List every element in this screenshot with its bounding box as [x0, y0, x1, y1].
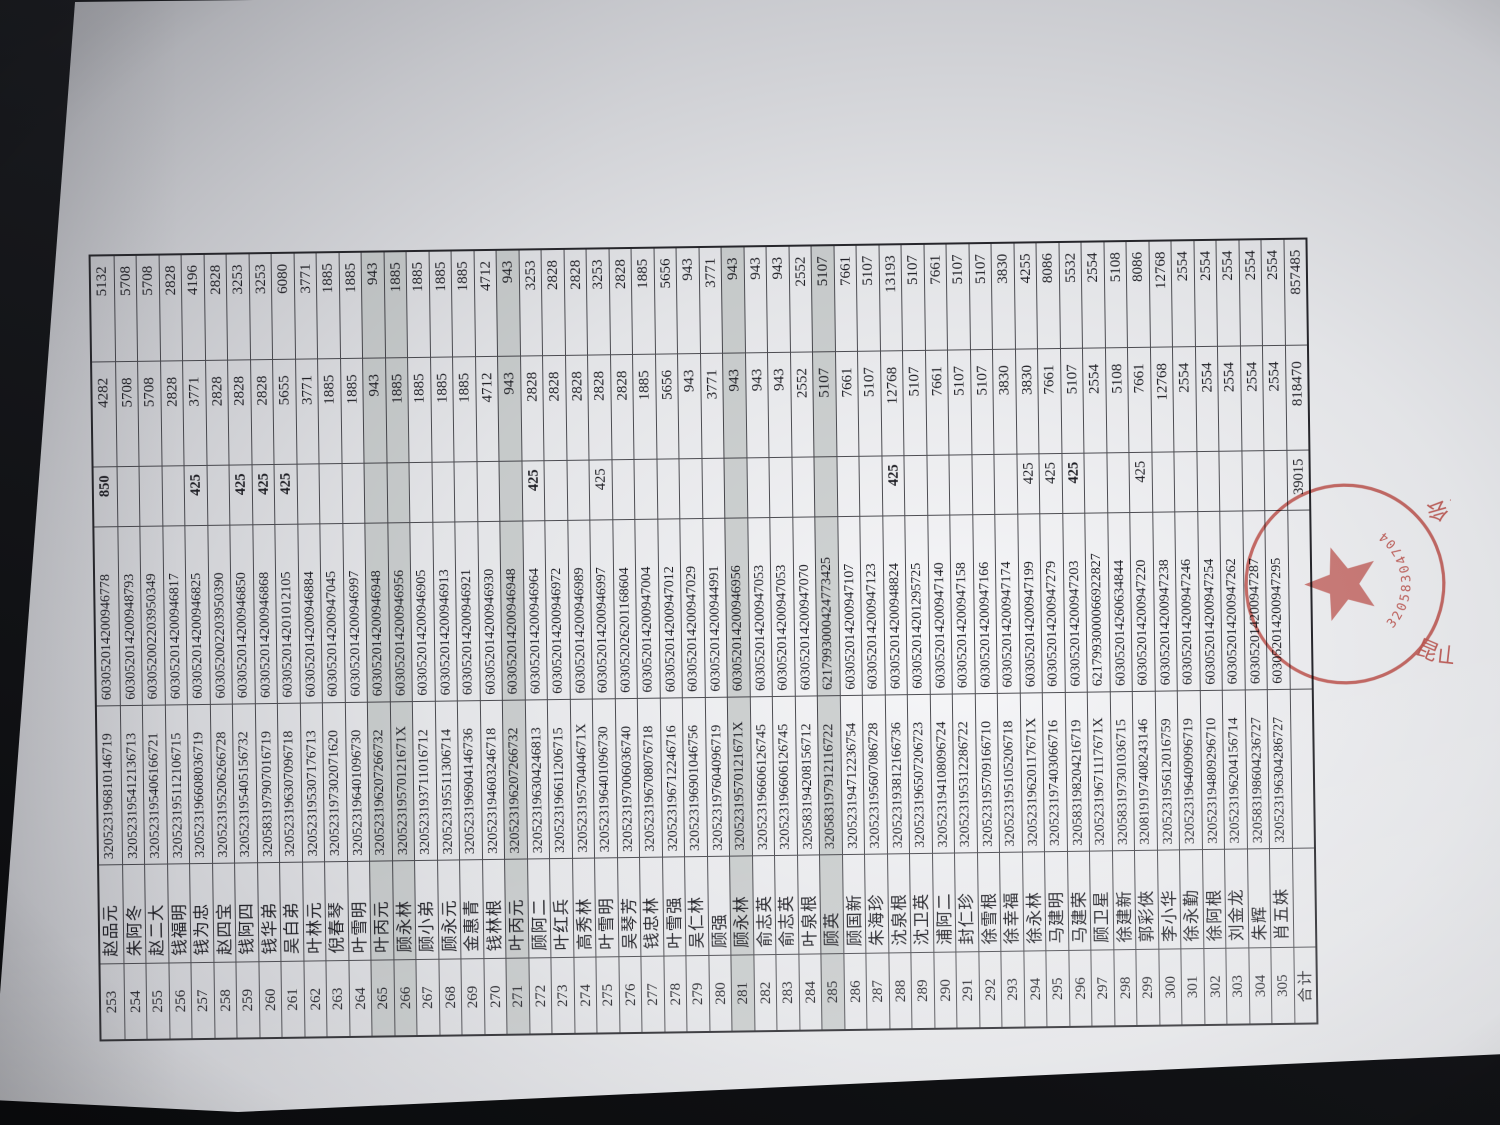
- person-name: 徐阿根: [1202, 850, 1225, 950]
- account-number: 6217993000066922827: [1085, 513, 1109, 692]
- base-amount: 3771: [296, 360, 319, 465]
- adjust-amount: 425: [1017, 454, 1039, 514]
- row-number: 285: [821, 954, 844, 1029]
- adjust-amount: [769, 458, 791, 518]
- base-amount: 5708: [138, 362, 161, 467]
- row-number: 274: [574, 958, 597, 1033]
- row-number: 255: [146, 964, 169, 1039]
- row-number: 266: [394, 960, 417, 1035]
- person-name: 钱为忠: [190, 864, 213, 964]
- total-label: 合计: [1294, 948, 1317, 1023]
- base-amount: 2828: [611, 355, 634, 460]
- adjust-amount: [297, 464, 319, 524]
- base-amount: 7661: [1038, 349, 1061, 454]
- id-number: 320523195511306714: [435, 701, 459, 860]
- adjust-amount: [387, 463, 409, 523]
- account-number: 603052014200946948: [365, 523, 389, 702]
- account-number: 603052014200946817: [163, 526, 187, 705]
- total-amount: 943: [497, 251, 520, 358]
- adjust-amount: [747, 458, 769, 518]
- rotated-table-wrapper: 253 赵品元 320523196810146719 6030520142009…: [89, 238, 1319, 1042]
- total-amount: 2828: [609, 249, 632, 356]
- id-number: 320523194712236754: [840, 696, 864, 855]
- id-number: 320819197408243146: [1133, 691, 1157, 850]
- total-amount: 2828: [204, 255, 227, 362]
- id-number: 320523194809296710: [1200, 691, 1224, 850]
- person-name: 李小华: [1157, 850, 1180, 950]
- person-name: 顾永林: [730, 856, 753, 956]
- row-number: 301: [1181, 949, 1204, 1024]
- person-name: 朱阿冬: [123, 865, 146, 965]
- row-number: 281: [731, 956, 754, 1031]
- adjust-amount: [477, 462, 499, 522]
- row-number: 263: [326, 961, 349, 1036]
- row-number: 260: [259, 962, 282, 1037]
- total-amount: 1885: [384, 252, 407, 359]
- base-amount: 1885: [318, 360, 341, 465]
- account-number: 603052014200946884: [298, 524, 322, 703]
- row-number: 294: [1024, 952, 1047, 1027]
- base-amount: 943: [498, 357, 521, 462]
- id-number: 320523194108096724: [930, 694, 954, 853]
- id-number: 320523194603246718: [480, 701, 504, 860]
- row-number: 253: [100, 965, 124, 1040]
- row-number: 254: [124, 964, 147, 1039]
- adjust-amount: [499, 462, 521, 522]
- id-number: 320523196606126745: [773, 696, 797, 855]
- person-name: 沈泉根: [888, 854, 911, 954]
- row-number: 302: [1204, 949, 1227, 1024]
- base-amount: 5108: [1105, 349, 1128, 454]
- adjust-amount: [724, 458, 746, 518]
- row-number: 300: [1159, 950, 1182, 1025]
- account-number: 603052014200948824: [883, 516, 907, 695]
- account-number: 603052014200947279: [1040, 514, 1064, 693]
- row-number: 272: [529, 959, 552, 1034]
- base-amount: 1885: [453, 358, 476, 463]
- adjust-amount: [634, 460, 656, 520]
- id-number: 320523195405156732: [233, 704, 257, 863]
- person-name: 徐永勤: [1180, 850, 1203, 950]
- id-number: 320523197006036740: [615, 699, 639, 858]
- id-number: 32052319570121671X: [390, 702, 414, 861]
- account-number: 603052014200946868: [253, 525, 277, 704]
- person-name: 倪春琴: [325, 862, 348, 962]
- base-amount: 12768: [1150, 348, 1173, 453]
- person-name: 叶林元: [303, 862, 326, 962]
- total-amount: 5107: [812, 246, 835, 353]
- total-amount: 2554: [1081, 242, 1104, 349]
- account-number: 603052014200946997: [343, 523, 367, 702]
- person-name: 徐幸福: [1000, 852, 1023, 952]
- row-number: 270: [484, 959, 507, 1034]
- total-amount: 2828: [542, 250, 565, 357]
- base-amount: 2554: [1240, 347, 1263, 452]
- person-name: 顾阿二: [528, 859, 551, 959]
- adjust-amount: [994, 455, 1016, 515]
- adjust-amount: 425: [185, 466, 207, 526]
- total-base-amount: 818470: [1285, 346, 1308, 451]
- total-amount: 8086: [1126, 242, 1149, 349]
- total-amount: 12768: [1149, 241, 1172, 348]
- id-number: 320583198204216719: [1065, 692, 1089, 851]
- adjust-amount: [657, 459, 679, 519]
- id-number: 32052319671117671X: [1088, 692, 1112, 851]
- adjust-amount: [1084, 453, 1106, 513]
- base-amount: 2828: [588, 356, 611, 461]
- person-name: 刘金龙: [1225, 849, 1248, 949]
- adjust-amount: [679, 459, 701, 519]
- account-number: 603052014200946850: [230, 525, 254, 704]
- person-name: 叶丙元: [370, 861, 393, 961]
- total-amount: 2554: [1194, 241, 1217, 348]
- account-number: 603052014200947166: [973, 515, 997, 694]
- person-name: 俞志英: [775, 856, 798, 956]
- official-red-stamp: 昆山市千灯镇村村务监督委员会 3205830470477: [1237, 476, 1454, 693]
- adjust-amount: [567, 461, 589, 521]
- base-amount: 7661: [925, 351, 948, 456]
- row-number: 292: [979, 952, 1002, 1027]
- account-number: 603052014200944991: [703, 518, 727, 697]
- person-name: 赵品元: [99, 865, 123, 965]
- id-number: 320583198604236727: [1245, 690, 1269, 849]
- id-number: 320523193812166736: [885, 695, 909, 854]
- account-number: 603052014200947053: [770, 517, 794, 696]
- total-amount: 3253: [227, 254, 250, 361]
- id-number: 320523196904146736: [458, 701, 482, 860]
- adjust-amount: [859, 456, 881, 516]
- person-name: 顾卫星: [1090, 851, 1113, 951]
- base-amount: 1885: [386, 359, 409, 464]
- base-amount: 2828: [161, 362, 184, 467]
- row-number: 271: [506, 959, 529, 1034]
- account-number: 603052014200947012: [658, 519, 682, 698]
- adjust-amount: [432, 462, 454, 522]
- base-amount: 943: [363, 359, 386, 464]
- base-amount: 943: [723, 354, 746, 459]
- adjust-amount: [207, 466, 229, 526]
- id-number: 32052319570404671X: [570, 699, 594, 858]
- person-name: 郭彩俠: [1135, 851, 1158, 951]
- id-number: 320523193711016712: [413, 702, 437, 861]
- row-number: 257: [191, 963, 214, 1038]
- id-number: 320523196207266732: [503, 700, 527, 859]
- adjust-amount: 425: [1062, 454, 1084, 514]
- total-amount: 943: [744, 247, 767, 354]
- adjust-amount: [1152, 452, 1174, 512]
- id-number: 320523195307176713: [300, 703, 324, 862]
- id-number: 320523195412136713: [120, 706, 144, 865]
- adjust-amount: [972, 455, 994, 515]
- person-name: 叶雪强: [663, 857, 686, 957]
- row-number: 279: [686, 956, 709, 1031]
- adjust-amount: [544, 461, 566, 521]
- svg-text:3205830470477: 3205830470477: [1237, 527, 1417, 693]
- row-number: 269: [461, 960, 484, 1035]
- row-number: 276: [619, 957, 642, 1032]
- account-number: 603052014200946948: [500, 521, 524, 700]
- total-amount: 2554: [1239, 240, 1262, 347]
- id-number: 320523196401096730: [593, 699, 617, 858]
- adjust-amount: [117, 467, 139, 527]
- person-name: 沈卫英: [910, 854, 933, 954]
- account-number: 603052002203950390: [208, 525, 232, 704]
- id-number: 320523195406166721: [143, 705, 167, 864]
- account-number: 603052014200946956: [725, 518, 749, 697]
- id-number: 320523196606126745: [750, 697, 774, 856]
- row-number: 267: [416, 960, 439, 1035]
- person-name: 朱辉: [1247, 849, 1270, 949]
- base-amount: 2828: [206, 361, 229, 466]
- base-amount: 7661: [1128, 348, 1151, 453]
- id-number: 320523196204156714: [1223, 690, 1247, 849]
- adjust-amount: [814, 457, 836, 517]
- account-number: 603052026201168604: [613, 520, 637, 699]
- adjust-amount: 425: [882, 456, 904, 516]
- account-number: 603052014200946997: [590, 520, 614, 699]
- base-amount: 2554: [1195, 347, 1218, 452]
- id-number: 320523196409096719: [1178, 691, 1202, 850]
- account-number: 603052014200947045: [320, 524, 344, 703]
- id-number: 320523196304286727: [1268, 690, 1292, 849]
- adjust-amount: 425: [1129, 453, 1151, 513]
- row-number: 290: [934, 953, 957, 1028]
- row-number: 261: [281, 962, 304, 1037]
- total-amount: 3830: [992, 244, 1015, 351]
- adjust-amount: [365, 463, 387, 523]
- total-amount: 2554: [1171, 241, 1194, 348]
- account-number: 603052014200948793: [118, 527, 142, 706]
- person-name: 叶泉根: [798, 855, 821, 955]
- stamp-graphic: 昆山市千灯镇村村务监督委员会 3205830470477: [1237, 476, 1454, 693]
- row-number: 288: [889, 954, 912, 1029]
- row-number: 256: [169, 964, 192, 1039]
- account-number: 603052014200947254: [1198, 511, 1222, 690]
- base-amount: 2552: [791, 353, 814, 458]
- base-amount: 2554: [1263, 346, 1286, 451]
- person-name: 马建明: [1045, 852, 1068, 952]
- person-name: 叶红兵: [550, 859, 573, 959]
- account-number: 603052014200946905: [410, 522, 434, 701]
- person-name: 钱阿四: [235, 863, 258, 963]
- id-number: 320523196712246716: [660, 698, 684, 857]
- person-name: 朱海珍: [865, 854, 888, 954]
- base-amount: 7661: [836, 352, 859, 457]
- account-number: 603052014200946964: [523, 521, 547, 700]
- base-amount: 3771: [183, 361, 206, 466]
- total-amount: 5107: [947, 244, 970, 351]
- row-number: 268: [439, 960, 462, 1035]
- total-amount: 5107: [969, 244, 992, 351]
- total-amount: 943: [677, 248, 700, 355]
- total-amount: 3771: [294, 253, 317, 360]
- row-number: 297: [1091, 951, 1114, 1026]
- adjust-amount: [927, 456, 949, 516]
- account-number: 603052014260634844: [1108, 513, 1132, 692]
- person-name: 徐雪根: [978, 853, 1001, 953]
- base-amount: 5107: [903, 351, 926, 456]
- total-amount: 2828: [159, 255, 182, 362]
- total-amount: 5108: [1104, 242, 1127, 349]
- adjust-amount: [837, 457, 859, 517]
- total-amount: 2554: [1261, 240, 1284, 347]
- row-number: 291: [956, 953, 979, 1028]
- person-name: 顾国新: [843, 855, 866, 955]
- total-amount: 2554: [1216, 240, 1239, 347]
- base-amount: 5107: [813, 353, 836, 458]
- adjust-amount: 425: [252, 465, 274, 525]
- id-number: 320523195312286722: [953, 694, 977, 853]
- adjust-amount: [410, 463, 432, 523]
- base-amount: 5107: [948, 351, 971, 456]
- person-name: 钱华弟: [258, 863, 281, 963]
- total-amount: 1885: [452, 251, 475, 358]
- row-number: 304: [1249, 949, 1272, 1024]
- id-number: 320523195612016759: [1155, 691, 1179, 850]
- base-amount: 3830: [1015, 350, 1038, 455]
- id-number: 320583197301036715: [1110, 692, 1134, 851]
- total-amount: 1885: [317, 253, 340, 360]
- account-number: 603052014200947203: [1063, 513, 1087, 692]
- total-sum-amount: 857485: [1284, 240, 1307, 347]
- total-id-empty: [1290, 689, 1314, 848]
- stamp-ring-text: 昆山市千灯镇村村务监督委员会: [1410, 494, 1454, 670]
- base-amount: 12768: [881, 352, 904, 457]
- adjust-amount: 425: [230, 465, 252, 525]
- base-amount: 1885: [408, 358, 431, 463]
- account-number: 603052014201295725: [905, 516, 929, 695]
- person-name: 顾英: [820, 855, 843, 955]
- base-amount: 4282: [92, 363, 116, 468]
- id-number: 320523196304246813: [525, 700, 549, 859]
- id-number: 320523196401096730: [345, 702, 369, 861]
- person-name: 顾永林: [393, 861, 416, 961]
- paper-sheet: 253 赵品元 320523196810146719 6030520142009…: [0, 0, 1500, 1125]
- base-amount: 2828: [521, 357, 544, 462]
- row-number: 277: [641, 957, 664, 1032]
- base-amount: 5656: [656, 355, 679, 460]
- adjust-amount: [140, 467, 162, 527]
- person-name: 钱福明: [168, 864, 191, 964]
- id-number: 320583197907016719: [255, 704, 279, 863]
- adjust-amount: 425: [522, 461, 544, 521]
- id-number: 320523196901046756: [683, 698, 707, 857]
- total-amount: 7661: [924, 245, 947, 352]
- base-amount: 3830: [993, 350, 1016, 455]
- base-amount: 5655: [273, 360, 296, 465]
- person-name: 赵四宝: [213, 863, 236, 963]
- base-amount: 5708: [116, 362, 139, 467]
- account-number: 603052014200946989: [568, 520, 592, 699]
- person-name: 马建荣: [1068, 852, 1091, 952]
- base-amount: 4712: [476, 357, 499, 462]
- row-number: 262: [304, 962, 327, 1037]
- row-number: 284: [799, 955, 822, 1030]
- total-amount: 943: [362, 252, 385, 359]
- id-number: 320523196507206723: [908, 695, 932, 854]
- adjust-amount: 850: [94, 467, 117, 527]
- row-number: 287: [866, 954, 889, 1029]
- id-number: 320523196207266732: [368, 702, 392, 861]
- base-amount: 1885: [341, 359, 364, 464]
- total-amount: 5708: [137, 256, 160, 363]
- svg-text:昆山市千灯镇村村务监督委员会: 昆山市千灯镇村村务监督委员会: [1410, 494, 1454, 670]
- row-number: 286: [844, 954, 867, 1029]
- id-number: 320523196307096718: [278, 703, 302, 862]
- account-number: 603052014200946956: [388, 523, 412, 702]
- id-number: 320523197302071620: [323, 703, 347, 862]
- account-number: 603052014200947238: [1153, 512, 1177, 691]
- base-amount: 2828: [251, 360, 274, 465]
- base-amount: 943: [678, 354, 701, 459]
- total-amount: 8086: [1037, 243, 1060, 350]
- person-name: 顾永元: [438, 860, 461, 960]
- account-number: 603052014200947004: [635, 519, 659, 698]
- account-number: 603052002203950349: [140, 526, 164, 705]
- total-amount: 5656: [654, 248, 677, 355]
- total-amount: 7661: [834, 246, 857, 353]
- row-number: 278: [664, 957, 687, 1032]
- account-number: 603052014200947220: [1130, 512, 1154, 691]
- base-amount: 5107: [970, 350, 993, 455]
- base-amount: 1885: [431, 358, 454, 463]
- row-number: 296: [1069, 951, 1092, 1026]
- account-number: 603052014200947158: [950, 515, 974, 694]
- adjust-amount: [702, 459, 724, 519]
- account-number: 6217993000424773425: [815, 517, 839, 696]
- base-amount: 5107: [858, 352, 881, 457]
- base-amount: 3771: [701, 354, 724, 459]
- adjust-amount: [455, 462, 477, 522]
- account-number: 603052014200947070: [793, 517, 817, 696]
- id-number: 320583194208156712: [795, 696, 819, 855]
- base-amount: 5107: [1060, 349, 1083, 454]
- total-name-empty: [1292, 848, 1315, 948]
- account-number: 603052014200946778: [94, 527, 119, 706]
- adjust-amount: [1197, 452, 1219, 512]
- person-name: 吴仁林: [685, 857, 708, 957]
- total-amount: 2828: [564, 250, 587, 357]
- person-name: 顾强: [708, 857, 731, 957]
- person-name: 钱林根: [483, 860, 506, 960]
- id-number: 320523197403066716: [1043, 693, 1067, 852]
- base-amount: 2828: [543, 356, 566, 461]
- total-amount: 5107: [857, 246, 880, 353]
- adjust-amount: [342, 464, 364, 524]
- row-number: 293: [1001, 952, 1024, 1027]
- adjust-amount: [1107, 453, 1129, 513]
- id-number: 320523195112106715: [165, 705, 189, 864]
- adjust-amount: [320, 464, 342, 524]
- total-amount: 3771: [699, 248, 722, 355]
- id-number: 320583197912116722: [818, 696, 842, 855]
- account-number: 603052014200947123: [860, 516, 884, 695]
- account-number: 603052014200947246: [1175, 512, 1199, 691]
- id-number: 320523195206266728: [210, 704, 234, 863]
- total-amount: 943: [722, 247, 745, 354]
- total-amount: 4196: [182, 255, 205, 362]
- id-number: 320523195105206718: [998, 693, 1022, 852]
- total-amount: 5107: [902, 245, 925, 352]
- id-number: 320523195607086728: [863, 695, 887, 854]
- total-amount: 943: [767, 247, 790, 354]
- adjust-amount: [949, 455, 971, 515]
- adjust-amount: [792, 457, 814, 517]
- person-name: 叶雪明: [348, 862, 371, 962]
- base-amount: 2554: [1218, 347, 1241, 452]
- adjust-amount: 425: [275, 465, 297, 525]
- row-number: 283: [776, 955, 799, 1030]
